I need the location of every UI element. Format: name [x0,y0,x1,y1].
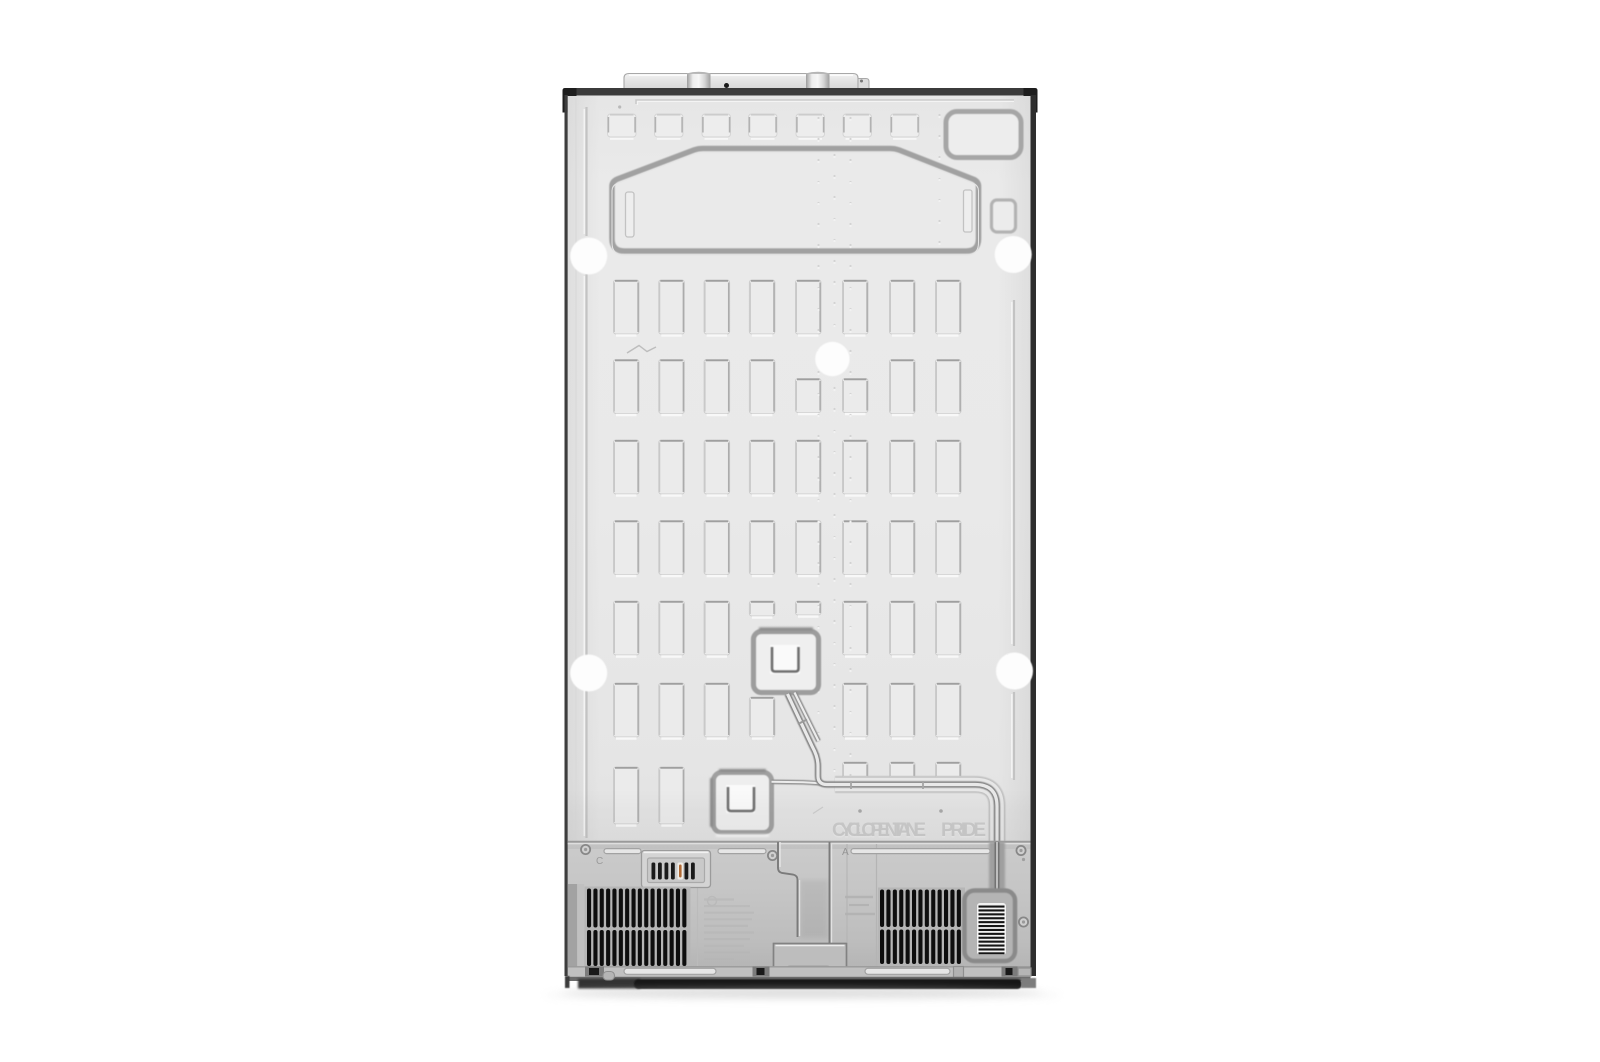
svg-text:A: A [842,847,849,858]
svg-text:C: C [596,856,603,867]
